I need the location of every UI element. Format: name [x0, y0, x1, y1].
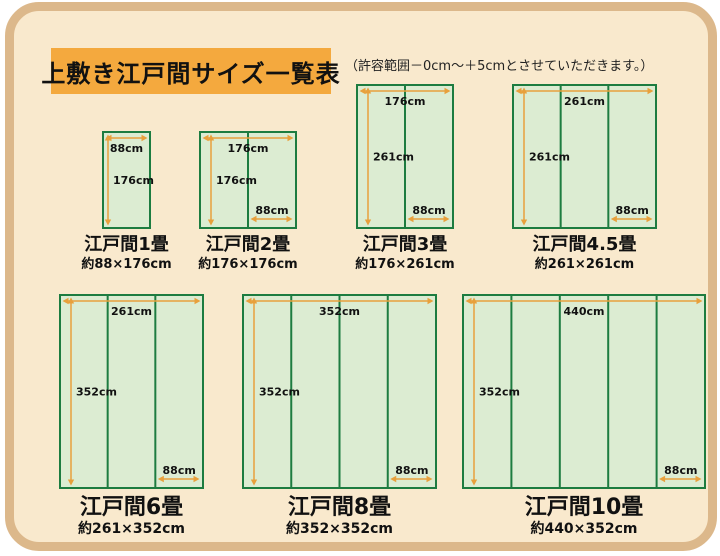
- height-label: 176cm: [216, 174, 257, 187]
- mat-diagram: 440cm352cm88cm江戸間10畳約440×352cm: [462, 294, 706, 537]
- mat-diagram-canvas: 261cm352cm88cm: [59, 294, 204, 489]
- diagram-caption: 江戸間4.5畳約261×261cm: [533, 235, 637, 272]
- diagram-name: 江戸間4.5畳: [533, 235, 637, 256]
- diagram-size: 約352×352cm: [286, 521, 393, 538]
- height-label: 261cm: [373, 151, 414, 164]
- mat-diagram: 352cm352cm88cm江戸間8畳約352×352cm: [242, 294, 437, 537]
- width-label: 352cm: [319, 305, 360, 318]
- mat-diagram-canvas: 261cm261cm88cm: [512, 84, 657, 229]
- diagram-name: 江戸間8畳: [286, 495, 393, 520]
- mat-width-label: 88cm: [412, 204, 445, 217]
- mat-diagram: 261cm261cm88cm江戸間4.5畳約261×261cm: [512, 84, 657, 277]
- diagram-name: 江戸間1畳: [81, 235, 171, 256]
- width-label: 176cm: [228, 142, 269, 155]
- mat-diagram-canvas: 88cm176cm: [102, 131, 151, 229]
- height-label: 352cm: [259, 386, 300, 399]
- mat-width-label: 88cm: [163, 464, 196, 477]
- height-label: 352cm: [479, 386, 520, 399]
- chart-panel: 上敷き江戸間サイズ一覧表 （許容範囲－0cm～＋5cmとさせていただきます。） …: [5, 2, 717, 551]
- height-label: 261cm: [529, 151, 570, 164]
- width-label: 176cm: [385, 95, 426, 108]
- width-label: 440cm: [564, 305, 605, 318]
- diagram-name: 江戸間6畳: [78, 495, 185, 520]
- diagram-caption: 江戸間10畳約440×352cm: [525, 495, 644, 538]
- mat-width-label: 88cm: [395, 464, 428, 477]
- mat-diagram: 176cm176cm88cm江戸間2畳約176×176cm: [199, 131, 297, 277]
- diagram-caption: 江戸間3畳約176×261cm: [355, 235, 454, 272]
- width-label: 261cm: [564, 95, 605, 108]
- diagram-caption: 江戸間8畳約352×352cm: [286, 495, 393, 538]
- mat-width-label: 88cm: [616, 204, 649, 217]
- page-title-text: 上敷き江戸間サイズ一覧表: [41, 54, 340, 89]
- diagram-caption: 江戸間1畳約88×176cm: [81, 235, 171, 272]
- mat-diagram: 261cm352cm88cm江戸間6畳約261×352cm: [59, 294, 204, 537]
- width-label: 88cm: [110, 142, 143, 155]
- width-label: 261cm: [111, 305, 152, 318]
- diagram-size: 約176×176cm: [198, 257, 297, 273]
- mat-diagram-canvas: 440cm352cm88cm: [462, 294, 706, 489]
- mat-diagram-canvas: 176cm176cm88cm: [199, 131, 297, 229]
- mat-width-label: 88cm: [255, 204, 288, 217]
- diagram-size: 約440×352cm: [525, 521, 644, 538]
- mat-diagram-canvas: 352cm352cm88cm: [242, 294, 437, 489]
- tolerance-note: （許容範囲－0cm～＋5cmとさせていただきます。）: [345, 55, 653, 74]
- diagram-name: 江戸間10畳: [525, 495, 644, 520]
- diagram-size: 約261×352cm: [78, 521, 185, 538]
- page-title: 上敷き江戸間サイズ一覧表: [51, 48, 331, 94]
- mat-diagram: 176cm261cm88cm江戸間3畳約176×261cm: [356, 84, 454, 277]
- diagram-size: 約176×261cm: [355, 257, 454, 273]
- mat-diagram: 88cm176cm江戸間1畳約88×176cm: [102, 131, 151, 277]
- height-label: 352cm: [76, 386, 117, 399]
- diagram-size: 約261×261cm: [533, 257, 637, 273]
- mat-diagram-canvas: 176cm261cm88cm: [356, 84, 454, 229]
- diagram-caption: 江戸間2畳約176×176cm: [198, 235, 297, 272]
- height-label: 176cm: [113, 174, 154, 187]
- diagram-caption: 江戸間6畳約261×352cm: [78, 495, 185, 538]
- diagram-name: 江戸間2畳: [198, 235, 297, 256]
- diagram-size: 約88×176cm: [81, 257, 171, 273]
- size-chart-image: { "header": { "title": "上敷き江戸間サイズ一覧表", "…: [0, 0, 720, 556]
- diagram-name: 江戸間3畳: [355, 235, 454, 256]
- mat-width-label: 88cm: [664, 464, 697, 477]
